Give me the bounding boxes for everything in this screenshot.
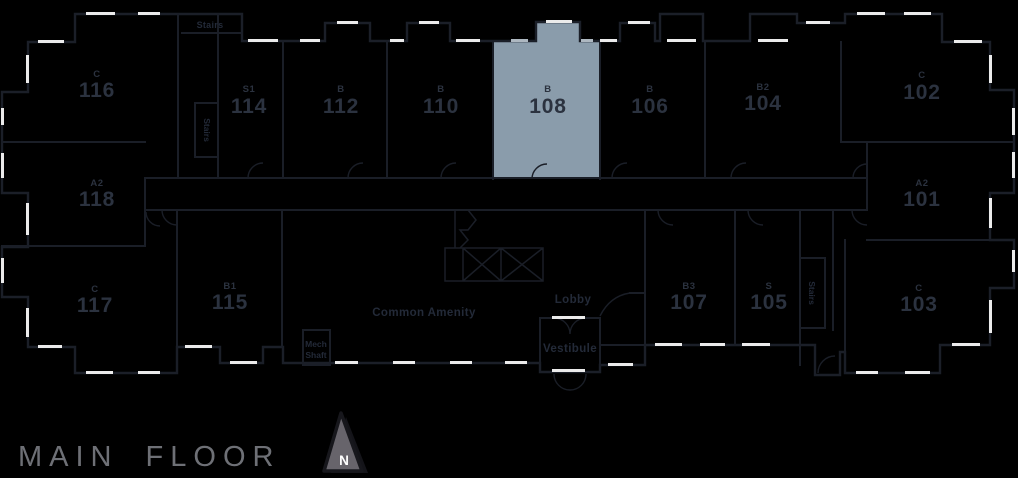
floorplan-svg: C 116 S1 114 B 112 B 110 B 108 B 106 B2 …	[0, 0, 1018, 478]
unit-number-101: 101	[903, 188, 940, 211]
unit-102[interactable]: C 102	[903, 70, 940, 104]
unit-number-106: 106	[631, 95, 668, 118]
lobby-label: Lobby	[555, 294, 592, 306]
floor-title: MAIN FLOOR	[18, 441, 280, 473]
unit-number-104: 104	[744, 92, 781, 115]
stairs-top-label: Stairs	[197, 20, 224, 30]
unit-number-117: 117	[77, 294, 113, 317]
unit-number-102: 102	[903, 81, 940, 104]
unit-106[interactable]: B 106	[631, 84, 668, 118]
main-floor-plan: C 116 S1 114 B 112 B 110 B 108 B 106 B2 …	[0, 0, 1018, 478]
common-amenity-label: Common Amenity	[372, 307, 476, 319]
north-compass: N	[324, 413, 368, 473]
unit-112[interactable]: B 112	[323, 84, 359, 118]
north-label: N	[339, 453, 349, 468]
unit-number-108: 108	[529, 95, 566, 118]
mech-shaft-label-2: Shaft	[305, 350, 326, 360]
unit-code-102: C	[918, 70, 925, 81]
stairs-left-label: Stairs	[202, 118, 212, 142]
unit-code-106: B	[646, 84, 653, 95]
unit-code-114: S1	[243, 84, 256, 95]
unit-116[interactable]: C 116	[79, 69, 115, 102]
unit-115[interactable]: B1 115	[212, 281, 248, 314]
unit-118[interactable]: A2 118	[79, 178, 115, 211]
unit-number-118: 118	[79, 188, 115, 211]
unit-107[interactable]: B3 107	[670, 281, 707, 314]
stairs-right-label: Stairs	[807, 281, 817, 305]
unit-number-116: 116	[79, 79, 115, 102]
unit-number-110: 110	[423, 95, 459, 118]
unit-number-103: 103	[900, 293, 937, 316]
unit-code-112: B	[337, 84, 344, 95]
unit-number-112: 112	[323, 95, 359, 118]
mech-shaft-label-1: Mech	[305, 339, 327, 349]
stair-symbol-center	[455, 210, 476, 248]
unit-code-108: B	[544, 84, 551, 95]
unit-code-110: B	[437, 84, 444, 95]
unit-110[interactable]: B 110	[423, 84, 459, 118]
unit-114[interactable]: S1 114	[231, 84, 267, 118]
unit-105[interactable]: S 105	[750, 281, 787, 314]
unit-number-115: 115	[212, 291, 248, 314]
unit-number-114: 114	[231, 95, 267, 118]
unit-101[interactable]: A2 101	[903, 178, 940, 211]
unit-number-107: 107	[670, 291, 707, 314]
unit-104[interactable]: B2 104	[744, 82, 781, 115]
unit-103[interactable]: C 103	[900, 283, 937, 316]
elevator-symbol	[445, 248, 543, 281]
unit-117[interactable]: C 117	[77, 284, 113, 317]
vestibule-label: Vestibule	[543, 343, 597, 355]
unit-number-105: 105	[750, 291, 787, 314]
